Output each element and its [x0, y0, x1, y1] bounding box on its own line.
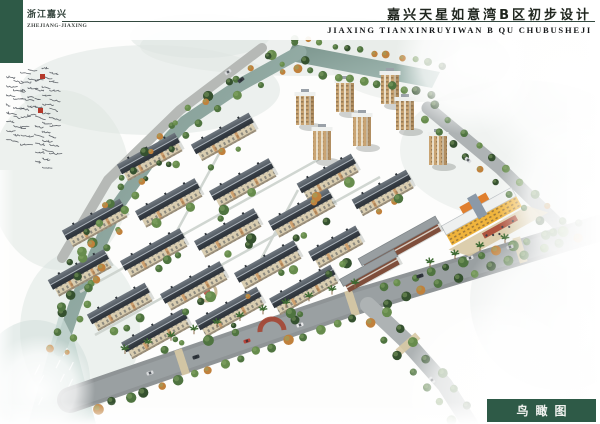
red-seal-icon: [38, 108, 43, 113]
corner-green-block: [0, 0, 23, 63]
apartment-slab: [351, 168, 417, 217]
highrise-tower: [352, 110, 381, 152]
view-label-box: 鸟瞰图: [487, 399, 596, 422]
birdseye-rendering: [0, 0, 600, 424]
view-label: 鸟瞰图: [509, 402, 573, 419]
highrise-tower: [312, 124, 341, 166]
project-title: 嘉兴天星如意湾B区初步设计: [387, 4, 592, 23]
apartment-slab: [134, 176, 205, 228]
calligraphy-annotation: [0, 63, 70, 188]
red-seal-icon: [40, 74, 45, 79]
apartment-slab: [307, 224, 366, 269]
palm-tree: [190, 325, 199, 334]
apartment-slab: [267, 186, 338, 238]
presentation-board: 浙江嘉兴 ZHEJIANG-JIAXING 嘉兴天星如意湾B区初步设计 JIAX…: [0, 0, 600, 424]
project-subtitle: JIAXING TIANXINRUYIWAN B QU CHUBUSHEJI: [327, 25, 592, 35]
region-subtitle: ZHEJIANG-JIAXING: [27, 23, 87, 29]
region-title: 浙江嘉兴: [27, 7, 67, 20]
apartment-slab: [159, 259, 230, 311]
